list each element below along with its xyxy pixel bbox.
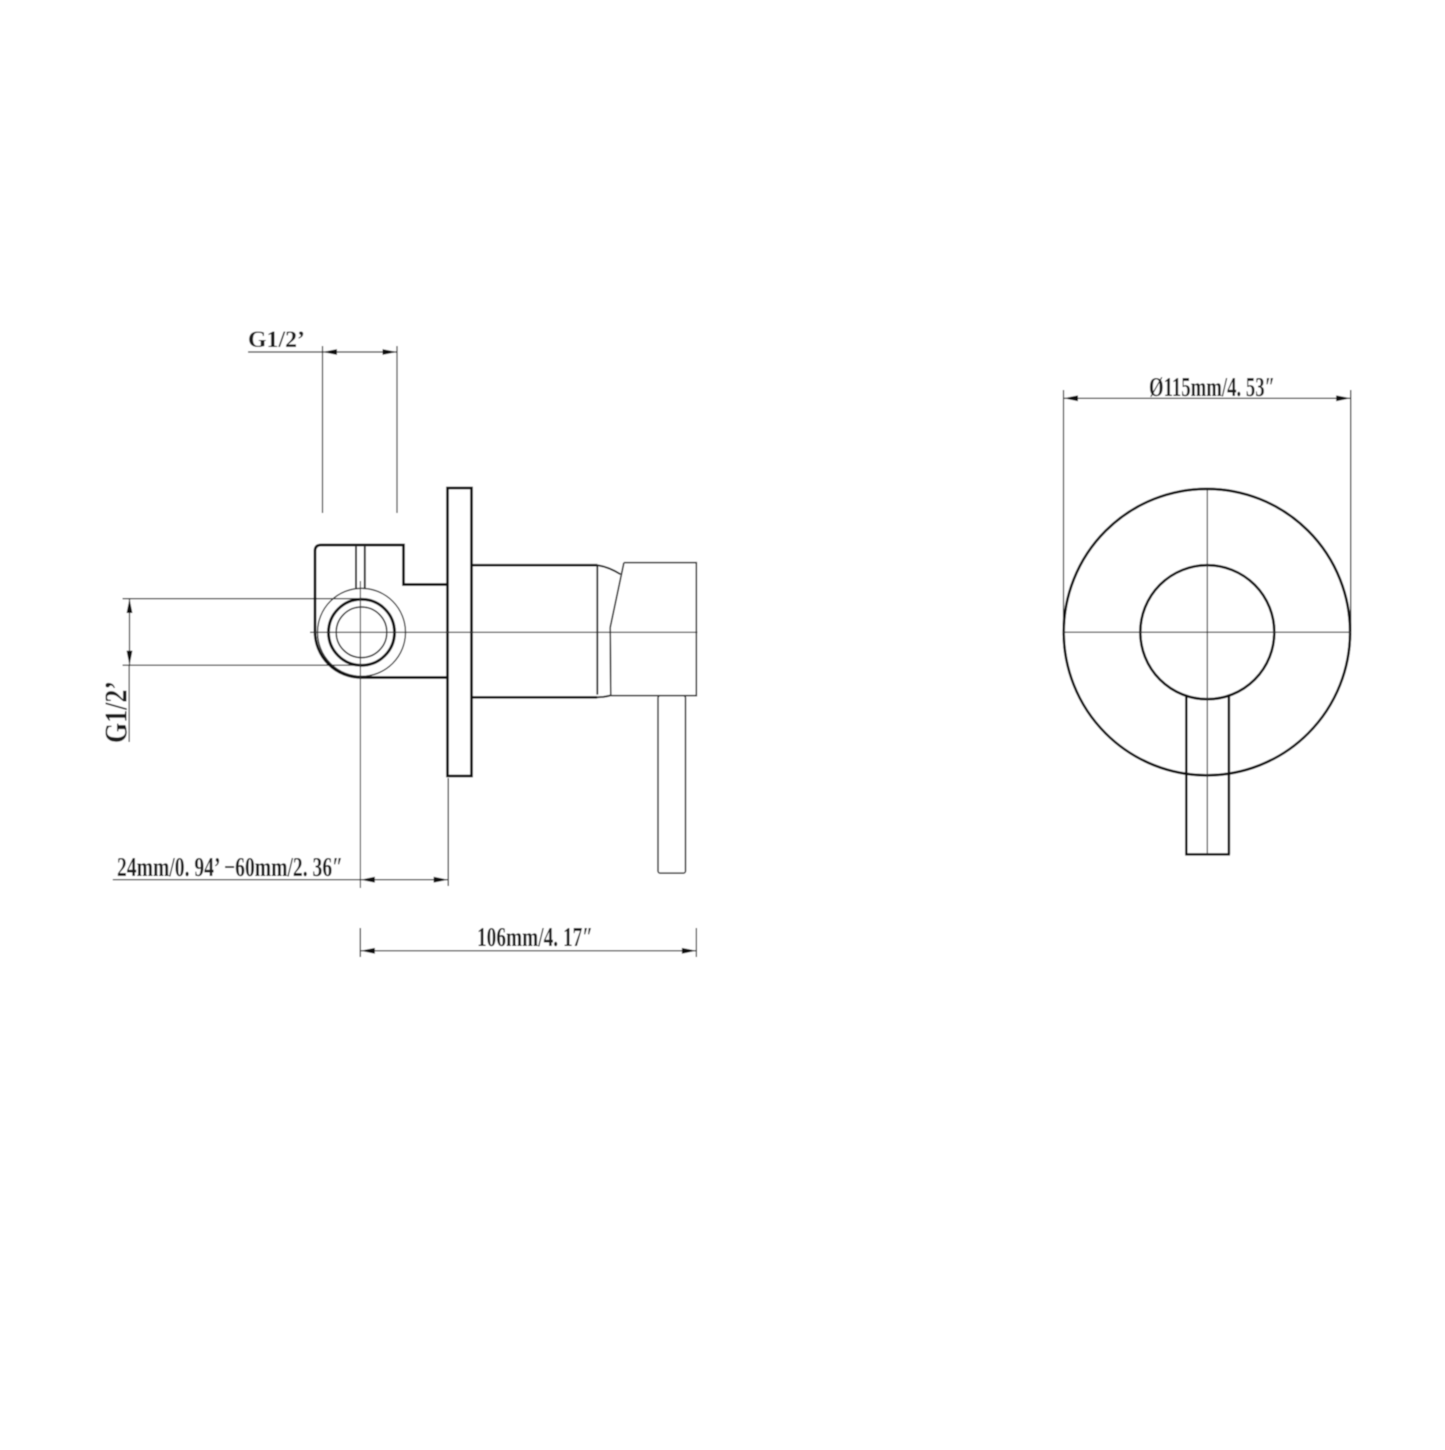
svg-text:Ø115mm/4. 53″: Ø115mm/4. 53″ [1149,372,1275,402]
svg-text:24mm/0. 94’ −60mm/2. 36″: 24mm/0. 94’ −60mm/2. 36″ [117,852,343,882]
svg-text:106mm/4. 17″: 106mm/4. 17″ [477,922,593,952]
svg-text:G1/2’: G1/2’ [98,681,134,743]
svg-text:G1/2’: G1/2’ [248,327,305,352]
